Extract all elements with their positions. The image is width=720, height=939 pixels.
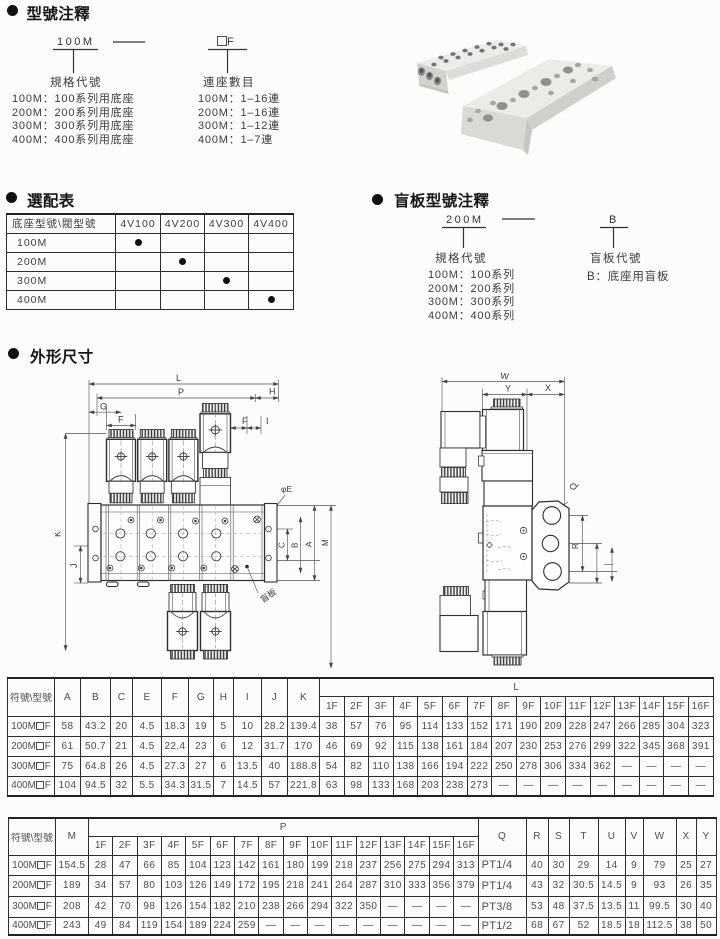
svg-text:H: H [269,387,276,397]
svg-text:X: X [545,383,551,393]
svg-text:Q: Q [569,483,579,490]
svg-text:K: K [55,531,63,537]
svg-text:W: W [500,371,510,382]
svg-text:I: I [266,416,269,426]
svg-text:Y: Y [505,384,511,394]
svg-text:L: L [176,373,181,383]
svg-text:A: A [305,541,314,547]
svg-text:B: B [291,543,300,548]
svg-text:C: C [278,542,287,548]
svg-text:P: P [178,387,184,397]
svg-text:J: J [69,564,79,569]
svg-text:F: F [242,416,248,426]
svg-text:G: G [100,402,107,412]
svg-text:φE: φE [281,484,293,494]
svg-text:M: M [321,539,330,546]
svg-text:R: R [571,543,580,549]
svg-text:盲板: 盲板 [258,586,278,604]
svg-text:F: F [118,415,124,425]
